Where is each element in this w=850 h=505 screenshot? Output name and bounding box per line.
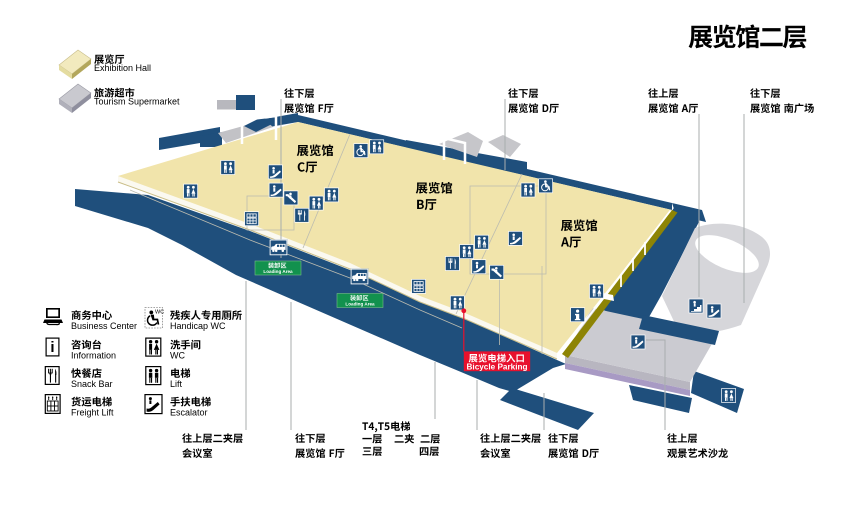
svg-text:Loading Area: Loading Area [263, 269, 293, 274]
svg-text:Information: Information [71, 351, 116, 361]
svg-text:Lift: Lift [170, 379, 183, 389]
svg-text:Tourism Supermarket: Tourism Supermarket [94, 96, 180, 106]
svg-text:i: i [50, 339, 54, 356]
svg-text:WC: WC [155, 310, 164, 316]
svg-text:Business Center: Business Center [71, 321, 137, 331]
svg-text:Freight Lift: Freight Lift [71, 408, 114, 418]
svg-text:Exhibition Hall: Exhibition Hall [94, 63, 151, 73]
svg-text:Bicycle Parking: Bicycle Parking [467, 363, 528, 372]
svg-text:Snack Bar: Snack Bar [71, 379, 113, 389]
svg-text:Handicap WC: Handicap WC [170, 321, 226, 331]
svg-text:WC: WC [170, 351, 185, 361]
svg-text:Loading Area: Loading Area [345, 302, 375, 307]
svg-text:Escalator: Escalator [170, 408, 208, 418]
